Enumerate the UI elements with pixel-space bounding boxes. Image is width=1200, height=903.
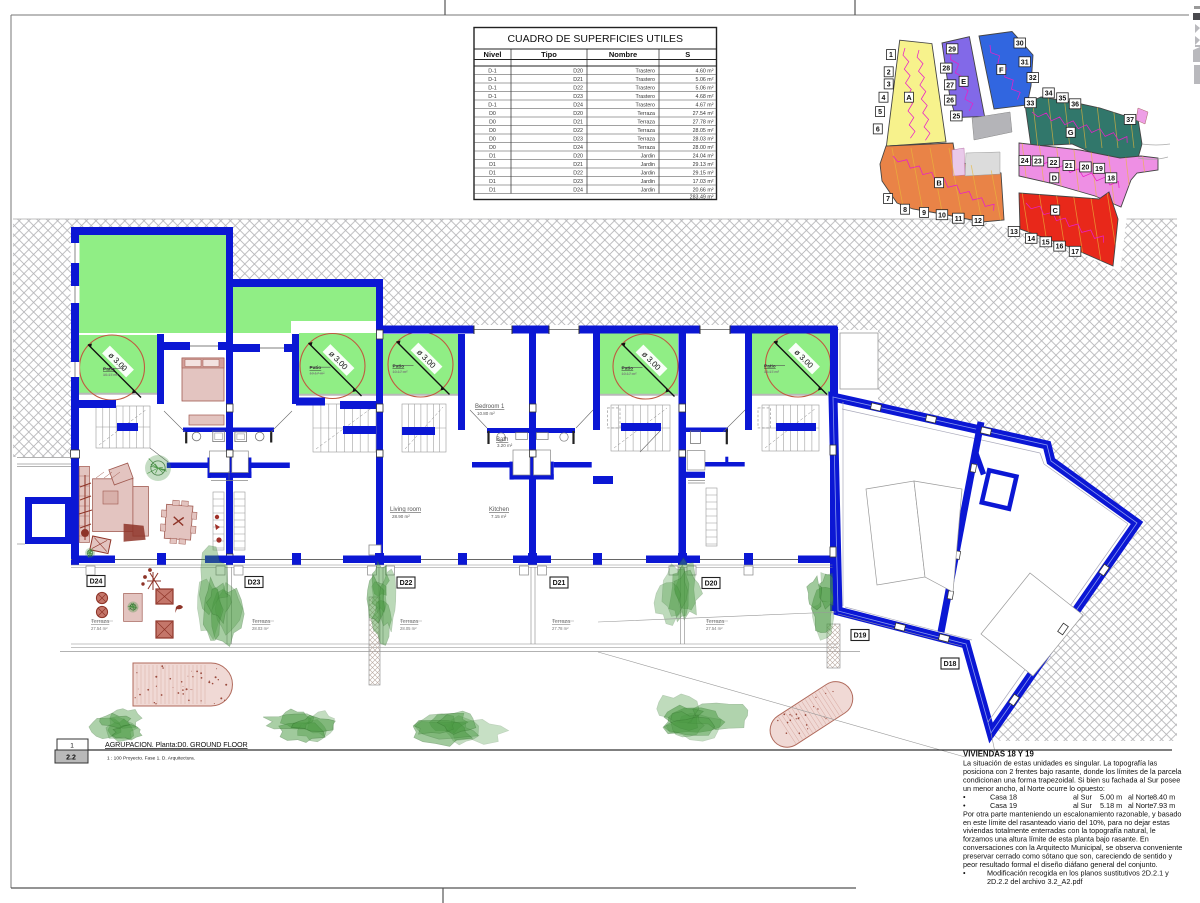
svg-text:3.20 m²: 3.20 m² (497, 443, 513, 448)
svg-text:28.90 m²: 28.90 m² (392, 514, 410, 519)
svg-text:Trastero: Trastero (635, 102, 655, 108)
svg-text:CUADRO DE SUPERFICIES UTILES: CUADRO DE SUPERFICIES UTILES (507, 33, 683, 45)
svg-text:D0: D0 (489, 119, 496, 125)
svg-text:D0: D0 (489, 111, 496, 117)
svg-text:11: 11 (955, 216, 963, 223)
svg-text:Nombre: Nombre (609, 50, 637, 59)
svg-text:D24: D24 (573, 102, 583, 108)
svg-text:27.54 m²: 27.54 m² (706, 626, 723, 631)
svg-text:Terraza: Terraza (637, 136, 655, 142)
svg-text:Jardin: Jardin (641, 170, 655, 176)
svg-text:D1: D1 (489, 153, 496, 159)
svg-text:33: 33 (1027, 100, 1035, 107)
svg-text:E: E (961, 77, 966, 86)
svg-text:12: 12 (974, 218, 982, 225)
svg-text:5.06 m²: 5.06 m² (696, 77, 714, 83)
svg-text:10.17 m²: 10.17 m² (764, 370, 780, 374)
svg-text:4.60 m²: 4.60 m² (696, 68, 714, 74)
svg-text:D-1: D-1 (488, 102, 497, 108)
svg-text:37: 37 (1126, 117, 1134, 124)
svg-text:Patio: Patio (393, 364, 405, 370)
svg-text:17: 17 (1071, 249, 1079, 256)
svg-text:18: 18 (1107, 175, 1115, 182)
svg-text:D23: D23 (248, 580, 261, 587)
svg-text:24.04 m²: 24.04 m² (693, 153, 714, 159)
svg-text:Tipo: Tipo (541, 50, 557, 59)
svg-text:Kitchen: Kitchen (489, 507, 509, 513)
svg-text:Terraza: Terraza (706, 619, 725, 625)
svg-text:D0: D0 (489, 128, 496, 134)
svg-text:10.17 m²: 10.17 m² (310, 372, 326, 376)
svg-text:Trastero: Trastero (635, 77, 655, 83)
svg-text:7.15 m²: 7.15 m² (491, 514, 507, 519)
svg-text:D-1: D-1 (488, 68, 497, 74)
svg-text:D21: D21 (573, 162, 583, 168)
svg-text:14: 14 (1027, 236, 1035, 243)
svg-text:23: 23 (1034, 159, 1042, 166)
svg-text:Jardin: Jardin (641, 187, 655, 193)
svg-text:Terraza: Terraza (91, 619, 110, 625)
svg-text:1 : 100 Proyecto. Fase 1. D. A: 1 : 100 Proyecto. Fase 1. D. Arquitectur… (107, 756, 195, 762)
svg-text:28.05 m²: 28.05 m² (400, 626, 417, 631)
svg-text:3: 3 (887, 82, 891, 89)
svg-text:D-1: D-1 (488, 85, 497, 91)
svg-text:G: G (1068, 128, 1074, 137)
svg-text:D0: D0 (489, 136, 496, 142)
svg-text:D-1: D-1 (488, 77, 497, 83)
svg-text:24: 24 (1021, 158, 1029, 165)
svg-text:D21: D21 (573, 77, 583, 83)
svg-text:VIVIENDAS 18 Y 19: VIVIENDAS 18 Y 19 (963, 750, 1034, 759)
svg-text:Jardin: Jardin (641, 162, 655, 168)
svg-text:29: 29 (948, 46, 956, 53)
svg-text:10.17 m²: 10.17 m² (393, 370, 409, 374)
svg-text:4: 4 (882, 95, 886, 102)
svg-text:27.78 m²: 27.78 m² (693, 119, 714, 125)
svg-text:10.17 m²: 10.17 m² (103, 373, 119, 377)
svg-text:28.05 m²: 28.05 m² (693, 128, 714, 134)
svg-text:2.2: 2.2 (66, 755, 76, 762)
svg-text:30: 30 (1016, 41, 1024, 48)
svg-text:283.49 m²: 283.49 m² (690, 194, 714, 200)
svg-text:D20: D20 (573, 68, 583, 74)
svg-text:D24: D24 (573, 145, 583, 151)
svg-text:Terraza: Terraza (637, 145, 655, 151)
svg-text:10.17 m²: 10.17 m² (622, 372, 638, 376)
svg-text:15: 15 (1042, 239, 1050, 246)
svg-text:Nivel: Nivel (484, 50, 502, 59)
svg-text:Living room: Living room (390, 507, 421, 513)
svg-text:A: A (906, 93, 912, 102)
svg-text:35: 35 (1059, 95, 1067, 102)
svg-text:36: 36 (1071, 101, 1079, 108)
svg-text:10: 10 (938, 212, 946, 219)
svg-text:Patio: Patio (310, 365, 322, 371)
svg-text:5: 5 (878, 109, 882, 116)
svg-text:D23: D23 (573, 179, 583, 185)
svg-text:D0: D0 (489, 145, 496, 151)
svg-text:Trastero: Trastero (635, 85, 655, 91)
svg-text:C: C (1052, 206, 1058, 215)
svg-text:4.67 m²: 4.67 m² (696, 102, 714, 108)
svg-text:27.78 m²: 27.78 m² (552, 626, 569, 631)
svg-text:9: 9 (922, 210, 926, 217)
svg-text:Bedroom 1: Bedroom 1 (475, 404, 505, 410)
svg-text:B: B (936, 179, 942, 188)
svg-text:D24: D24 (573, 187, 583, 193)
svg-text:Terraza: Terraza (637, 128, 655, 134)
svg-text:D1: D1 (489, 187, 496, 193)
svg-text:D1: D1 (489, 162, 496, 168)
svg-text:Jardin: Jardin (641, 179, 655, 185)
svg-text:D21: D21 (553, 580, 566, 587)
svg-text:D1: D1 (489, 170, 496, 176)
svg-text:AGRUPACION. Planta:D0. GROUND: AGRUPACION. Planta:D0. GROUND FLOOR (105, 740, 248, 749)
svg-text:D18: D18 (944, 661, 957, 668)
svg-text:27: 27 (946, 82, 954, 89)
svg-text:Terraza: Terraza (252, 619, 271, 625)
svg-text:7: 7 (886, 196, 890, 203)
svg-text:28.03 m²: 28.03 m² (252, 626, 269, 631)
svg-text:D23: D23 (573, 136, 583, 142)
svg-text:Terraza: Terraza (552, 619, 571, 625)
svg-text:D24: D24 (90, 579, 103, 586)
svg-text:6: 6 (876, 127, 880, 134)
svg-text:Patio: Patio (622, 366, 634, 372)
svg-text:1: 1 (889, 52, 893, 59)
svg-text:5.06 m²: 5.06 m² (696, 85, 714, 91)
svg-text:Trastero: Trastero (635, 68, 655, 74)
svg-text:26: 26 (946, 98, 954, 105)
svg-text:2: 2 (887, 69, 891, 76)
svg-text:Terraza: Terraza (637, 111, 655, 117)
svg-text:Terraza: Terraza (400, 619, 419, 625)
svg-text:29.15 m²: 29.15 m² (693, 170, 714, 176)
svg-text:27.54 m²: 27.54 m² (693, 111, 714, 117)
svg-text:D1: D1 (489, 179, 496, 185)
svg-text:20.66 m²: 20.66 m² (693, 187, 714, 193)
svg-text:D22: D22 (573, 128, 583, 134)
svg-text:31: 31 (1021, 59, 1029, 66)
svg-text:8: 8 (903, 207, 907, 214)
svg-text:D22: D22 (573, 170, 583, 176)
svg-text:D21: D21 (573, 119, 583, 125)
svg-text:D19: D19 (854, 633, 867, 640)
svg-text:17.03 m²: 17.03 m² (693, 179, 714, 185)
svg-text:1: 1 (70, 743, 74, 750)
svg-text:20: 20 (1082, 165, 1090, 172)
svg-text:Terraza: Terraza (637, 119, 655, 125)
svg-text:Patio: Patio (103, 367, 115, 373)
svg-text:D20: D20 (573, 153, 583, 159)
svg-text:D22: D22 (400, 580, 413, 587)
svg-text:Trastero: Trastero (635, 94, 655, 100)
svg-text:16: 16 (1056, 244, 1064, 251)
svg-text:32: 32 (1029, 75, 1037, 82)
svg-text:28.03 m²: 28.03 m² (693, 136, 714, 142)
svg-text:D22: D22 (573, 85, 583, 91)
svg-text:28.00 m²: 28.00 m² (693, 145, 714, 151)
svg-text:D20: D20 (573, 111, 583, 117)
svg-text:25: 25 (953, 114, 961, 121)
svg-text:34: 34 (1045, 91, 1053, 98)
svg-text:S: S (685, 50, 690, 59)
svg-text:D20: D20 (705, 581, 718, 588)
svg-text:19: 19 (1095, 166, 1103, 173)
svg-text:13: 13 (1010, 229, 1018, 236)
svg-text:D: D (1052, 174, 1058, 183)
svg-text:Jardin: Jardin (641, 153, 655, 159)
svg-text:21: 21 (1065, 163, 1073, 170)
svg-text:D23: D23 (573, 94, 583, 100)
svg-text:10.80 m²: 10.80 m² (477, 411, 495, 416)
svg-text:27.54 m²: 27.54 m² (91, 626, 108, 631)
svg-text:29.13 m²: 29.13 m² (693, 162, 714, 168)
svg-text:F: F (999, 65, 1004, 74)
svg-text:4.68 m²: 4.68 m² (696, 94, 714, 100)
svg-text:Patio: Patio (764, 364, 776, 370)
svg-text:28: 28 (942, 66, 950, 73)
svg-text:2D.2.2 del archivo 3.2_A2.pdf: 2D.2.2 del archivo 3.2_A2.pdf (987, 877, 1084, 886)
svg-text:D-1: D-1 (488, 94, 497, 100)
svg-text:22: 22 (1050, 160, 1058, 167)
